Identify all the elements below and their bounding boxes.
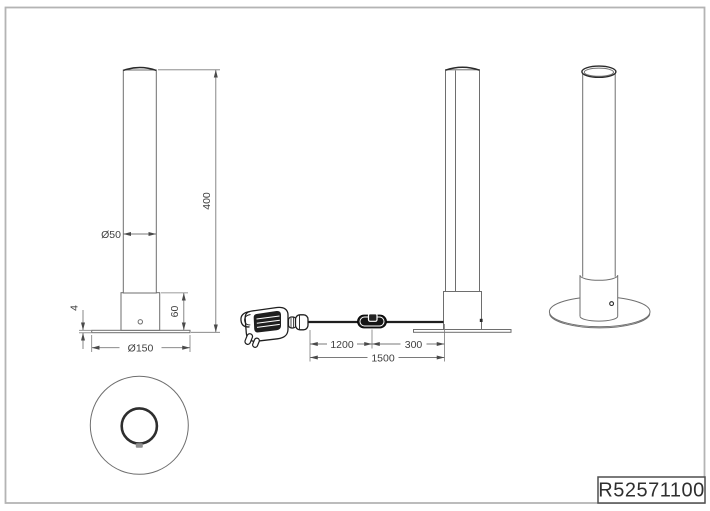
cable-notch bbox=[136, 443, 143, 448]
base-body-side bbox=[444, 292, 482, 330]
dim-label-total-height: 400 bbox=[201, 192, 213, 210]
cable-grommet-dot bbox=[480, 319, 483, 322]
dim-base-height: 60 bbox=[161, 293, 188, 330]
lamp-tube-side bbox=[446, 70, 480, 292]
base-body bbox=[121, 293, 160, 331]
dim-label-switch-to-base: 300 bbox=[405, 339, 423, 351]
cable-connector-icon bbox=[289, 315, 309, 330]
dim-label-tube-diameter: Ø50 bbox=[101, 229, 121, 241]
inline-switch-icon bbox=[358, 314, 387, 328]
dim-plate-diameter: Ø150 bbox=[92, 335, 190, 354]
dim-label-plate-diameter: Ø150 bbox=[128, 342, 154, 354]
base-plate-top bbox=[90, 376, 188, 474]
dim-label-cable-total: 1500 bbox=[371, 352, 395, 364]
lamp-tube bbox=[123, 70, 156, 293]
dim-plate-thickness: 4 bbox=[69, 305, 92, 349]
side-view bbox=[414, 67, 512, 332]
drawing-canvas: Ø50 400 60 4 Ø150 bbox=[0, 0, 710, 511]
dim-label-base-height: 60 bbox=[169, 306, 181, 318]
tube-outline-top bbox=[122, 408, 157, 443]
perspective-view bbox=[549, 66, 650, 328]
top-view bbox=[90, 376, 188, 474]
dim-label-plug-to-switch: 1200 bbox=[330, 339, 354, 351]
technical-drawing-page: Ø50 400 60 4 Ø150 bbox=[0, 0, 710, 511]
title-block: R52571100 bbox=[598, 477, 705, 503]
base-screw-3d bbox=[610, 302, 614, 306]
power-plug-icon bbox=[241, 307, 288, 348]
dim-label-plate-thickness: 4 bbox=[69, 305, 81, 311]
lamp-tube-3d bbox=[583, 70, 616, 277]
part-number: R52571100 bbox=[598, 480, 704, 502]
